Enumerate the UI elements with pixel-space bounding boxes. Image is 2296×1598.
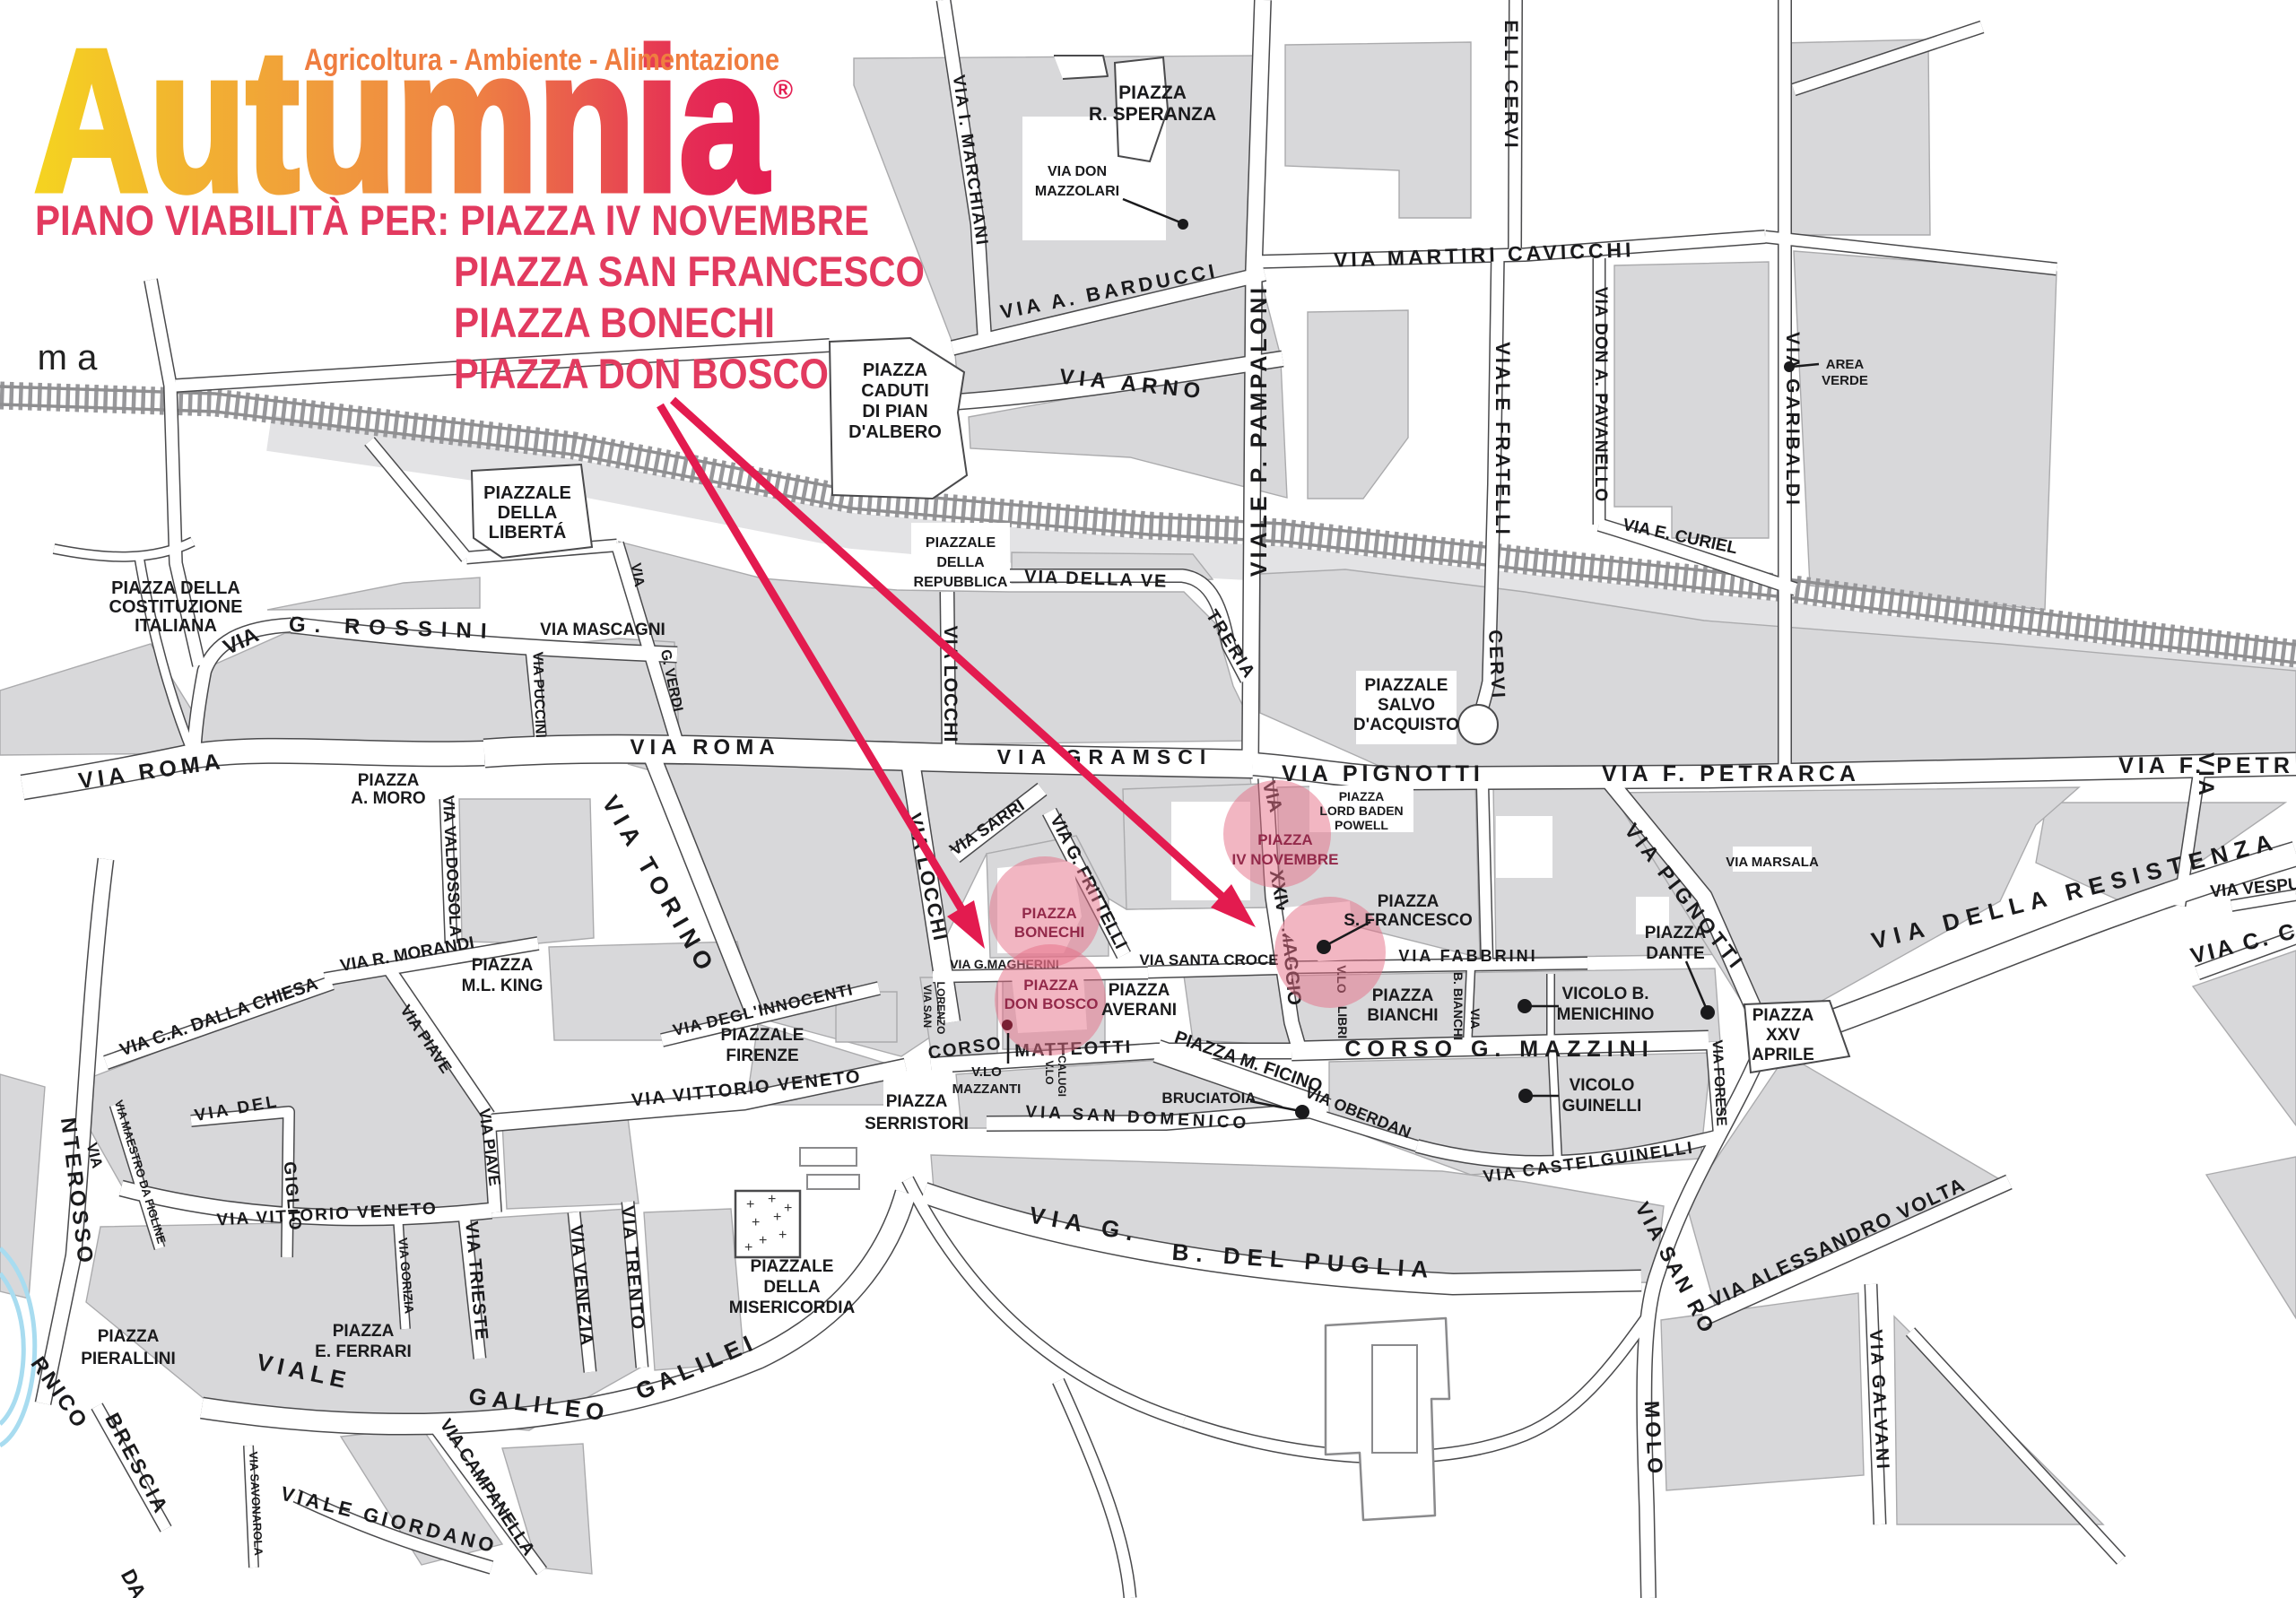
svg-text:PIAZZA: PIAZZA: [863, 360, 927, 380]
svg-text:PIAZZA: PIAZZA: [98, 1327, 160, 1346]
svg-text:VIA SANTA CROCE: VIA SANTA CROCE: [1139, 951, 1278, 968]
svg-text:VERDE: VERDE: [1822, 373, 1868, 388]
svg-text:B. BIANCHI: B. BIANCHI: [1451, 972, 1465, 1040]
svg-text:VIA F. PETRARCA: VIA F. PETRARCA: [1602, 761, 1860, 786]
svg-text:MENICHINO: MENICHINO: [1557, 1005, 1655, 1024]
svg-text:PIAZZA DELLA: PIAZZA DELLA: [111, 578, 240, 598]
svg-text:PIAZZA: PIAZZA: [1257, 831, 1312, 848]
svg-text:S. FRANCESCO: S. FRANCESCO: [1344, 911, 1473, 930]
svg-text:REPUBBLICA: REPUBBLICA: [914, 575, 1008, 590]
svg-text:PIERALLINI: PIERALLINI: [81, 1350, 176, 1368]
svg-text:FIRENZE: FIRENZE: [726, 1047, 798, 1065]
svg-text:ITALIANA: ITALIANA: [135, 616, 217, 636]
svg-text:PIAZZA: PIAZZA: [472, 956, 534, 975]
svg-text:PIAZZALE: PIAZZALE: [751, 1257, 834, 1276]
svg-text:VICOLO: VICOLO: [1570, 1076, 1635, 1095]
svg-text:CADUTI: CADUTI: [861, 381, 929, 401]
svg-text:D'ACQUISTO: D'ACQUISTO: [1353, 716, 1459, 734]
svg-text:VIA PIGNOTTI: VIA PIGNOTTI: [1282, 761, 1484, 786]
svg-text:PIANO VIABILITÀ PER: PIAZZA IV: PIANO VIABILITÀ PER: PIAZZA IV NOVEMBRE: [35, 196, 869, 244]
svg-text:LORENZO: LORENZO: [935, 982, 947, 1035]
svg-text:PIAZZA: PIAZZA: [333, 1322, 395, 1341]
svg-text:+: +: [752, 1215, 760, 1230]
svg-text:VIA DON: VIA DON: [1048, 164, 1107, 179]
svg-text:VIA: VIA: [2194, 752, 2218, 799]
svg-text:LIBERTÁ: LIBERTÁ: [489, 522, 567, 543]
svg-text:PIAZZA: PIAZZA: [358, 771, 420, 790]
svg-text:APRILE: APRILE: [1752, 1046, 1814, 1064]
svg-text:E. FERRARI: E. FERRARI: [315, 1342, 412, 1361]
svg-text:GUINELLI: GUINELLI: [1562, 1097, 1642, 1116]
svg-text:PIAZZA: PIAZZA: [1023, 977, 1078, 994]
svg-text:VIALE FRATELLI: VIALE FRATELLI: [1492, 342, 1514, 537]
svg-text:PIAZZA: PIAZZA: [886, 1092, 948, 1111]
svg-text:AVERANI: AVERANI: [1101, 1001, 1177, 1020]
svg-text:DI PIAN: DI PIAN: [862, 402, 927, 421]
svg-text:+: +: [746, 1197, 754, 1212]
svg-text:PIAZZA: PIAZZA: [1339, 789, 1385, 803]
svg-text:PIAZZA: PIAZZA: [1378, 892, 1439, 911]
svg-text:PIAZZA: PIAZZA: [1372, 986, 1434, 1005]
svg-text:+: +: [784, 1201, 792, 1216]
svg-text:BIANCHI: BIANCHI: [1367, 1006, 1438, 1025]
svg-text:MISERICORDIA: MISERICORDIA: [729, 1298, 856, 1317]
svg-text:+: +: [759, 1233, 767, 1248]
svg-text:XXV: XXV: [1766, 1026, 1800, 1045]
svg-text:D'ALBERO: D'ALBERO: [848, 422, 942, 442]
svg-text:R. SPERANZA: R. SPERANZA: [1089, 104, 1216, 125]
svg-text:Agricoltura - Ambiente - Alime: Agricoltura - Ambiente - Alimentazione: [304, 43, 779, 77]
svg-text:V.LO: V.LO: [1043, 1061, 1056, 1085]
svg-text:PIAZZA: PIAZZA: [1109, 981, 1170, 1000]
svg-text:IV NOVEMBRE: IV NOVEMBRE: [1231, 851, 1338, 868]
svg-text:DANTE: DANTE: [1646, 944, 1704, 963]
svg-text:LIBRI: LIBRI: [1335, 1006, 1350, 1039]
svg-text:VIA PUCCINI: VIA PUCCINI: [529, 651, 547, 738]
svg-text:DELLA: DELLA: [498, 503, 558, 523]
svg-text:COSTITUZIONE: COSTITUZIONE: [109, 597, 243, 617]
svg-text:CERVI: CERVI: [1484, 630, 1509, 701]
svg-text:PIAZZALE: PIAZZALE: [1365, 676, 1448, 695]
svg-text:V.LO: V.LO: [971, 1064, 1002, 1080]
svg-text:MOLO: MOLO: [1640, 1400, 1667, 1477]
svg-text:+: +: [778, 1228, 787, 1243]
svg-text:PIAZZA: PIAZZA: [1118, 83, 1187, 103]
svg-text:MAZZOLARI: MAZZOLARI: [1035, 184, 1119, 199]
svg-text:PIAZZA: PIAZZA: [1022, 905, 1076, 922]
svg-text:VIA ROMA: VIA ROMA: [630, 735, 779, 760]
svg-text:VIA FABBRINI: VIA FABBRINI: [1398, 947, 1537, 965]
svg-text:+: +: [768, 1192, 776, 1207]
svg-text:PIAZZALE: PIAZZALE: [926, 535, 996, 551]
svg-text:SALVO: SALVO: [1378, 696, 1435, 715]
svg-text:VIA GARIBALDI: VIA GARIBALDI: [1782, 332, 1803, 508]
svg-text:SERRISTORI: SERRISTORI: [865, 1115, 969, 1133]
svg-text:A. MORO: A. MORO: [351, 789, 425, 808]
svg-text:M.L. KING: M.L. KING: [462, 977, 544, 995]
svg-text:VIA GRAMSCI: VIA GRAMSCI: [997, 745, 1213, 769]
svg-text:PIAZZA: PIAZZA: [1645, 924, 1707, 942]
svg-text:PIAZZALE: PIAZZALE: [721, 1026, 804, 1045]
svg-text:VIA: VIA: [1468, 1008, 1483, 1029]
svg-text:m a: m a: [38, 338, 98, 378]
svg-text:AREA: AREA: [1826, 357, 1865, 372]
svg-text:®: ®: [773, 75, 793, 105]
svg-text:+: +: [773, 1210, 781, 1225]
svg-text:ELLI CERVI: ELLI CERVI: [1500, 20, 1521, 150]
svg-text:POWELL: POWELL: [1335, 818, 1388, 832]
svg-text:CORSO G. MAZZINI: CORSO G. MAZZINI: [1344, 1037, 1654, 1062]
svg-text:VIA SAN: VIA SAN: [921, 985, 934, 1028]
svg-text:PIAZZALE: PIAZZALE: [483, 483, 571, 503]
svg-text:VIA DON A. PAVANELLO: VIA DON A. PAVANELLO: [1591, 287, 1610, 502]
svg-text:CALUGI: CALUGI: [1056, 1055, 1068, 1097]
svg-text:PIAZZA BONECHI: PIAZZA BONECHI: [454, 299, 775, 346]
svg-text:PIAZZA: PIAZZA: [1752, 1006, 1814, 1025]
svg-text:VIA MASCAGNI: VIA MASCAGNI: [540, 621, 665, 639]
svg-text:BONECHI: BONECHI: [1014, 924, 1084, 941]
svg-text:PIAZZA SAN FRANCESCO: PIAZZA SAN FRANCESCO: [454, 248, 925, 295]
svg-text:PIAZZA DON BOSCO: PIAZZA DON BOSCO: [454, 350, 829, 397]
svg-text:BRUCIATOIA: BRUCIATOIA: [1161, 1090, 1256, 1107]
svg-text:+: +: [744, 1240, 752, 1255]
svg-text:MAZZANTI: MAZZANTI: [952, 1081, 1022, 1097]
svg-text:VIALE P. PAMPALONI: VIALE P. PAMPALONI: [1247, 284, 1272, 577]
svg-text:LORD BADEN: LORD BADEN: [1319, 803, 1403, 818]
svg-text:DON BOSCO: DON BOSCO: [1004, 995, 1099, 1012]
svg-text:DELLA: DELLA: [763, 1278, 821, 1297]
svg-text:VIA MARSALA: VIA MARSALA: [1726, 855, 1819, 870]
svg-text:VICOLO B.: VICOLO B.: [1561, 985, 1648, 1003]
svg-text:DELLA: DELLA: [936, 555, 985, 570]
